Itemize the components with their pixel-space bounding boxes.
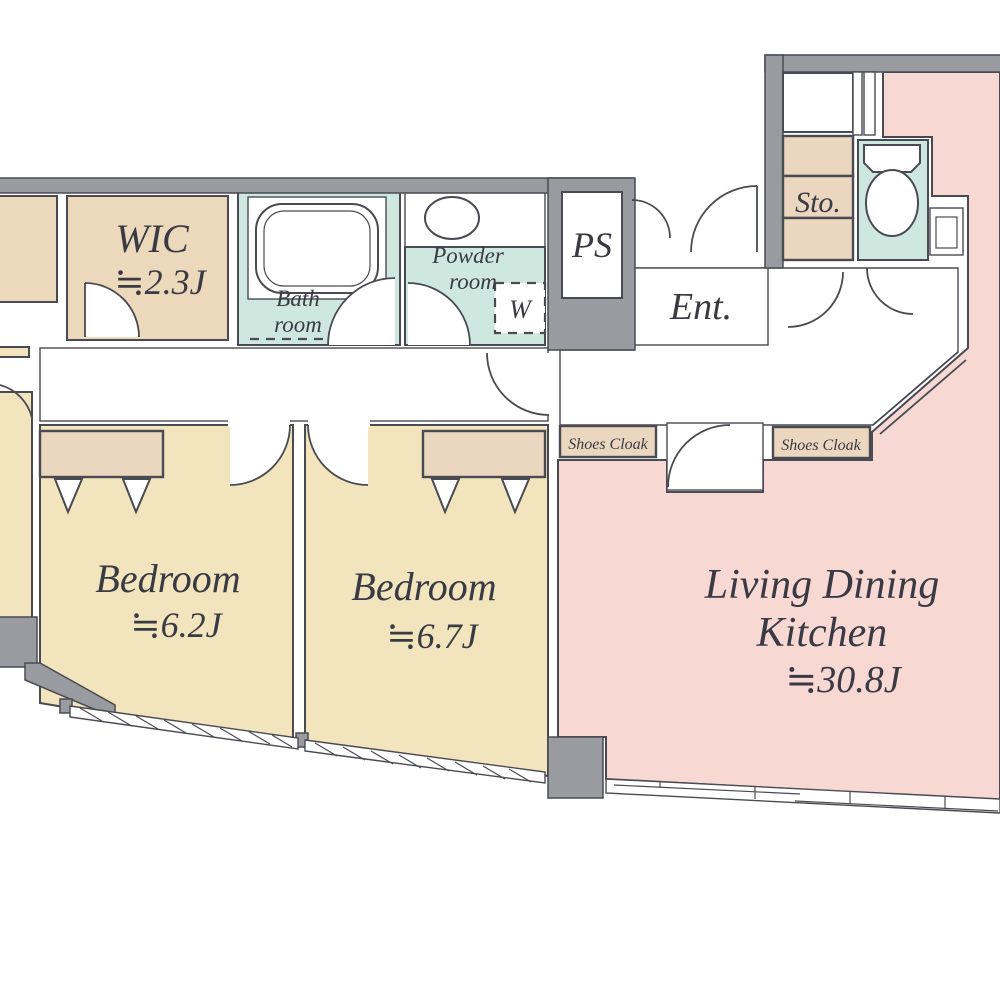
storage-upper-box (783, 73, 853, 132)
room-storage (783, 73, 853, 260)
shoes-cloak-left-label: Shoes Cloak (568, 436, 648, 453)
left-room-bottom (0, 392, 32, 618)
wall-top-left (0, 178, 632, 193)
door-arc-entry-small (632, 200, 670, 238)
bedroom-left-label: Bedroom (95, 556, 240, 601)
powder-label-1: Powder (431, 243, 505, 268)
bath-label-1: Bath (276, 286, 319, 311)
toilet-tank (864, 145, 920, 172)
floor-plan: WIC ≒2.3J Bath room Powder room W PS Ent… (0, 0, 1000, 1000)
ldk-label-2: Kitchen (756, 610, 888, 656)
bathtub-icon (256, 204, 378, 293)
wall-top-right (765, 55, 1000, 72)
entrance-label: Ent. (669, 286, 732, 328)
door-ldk-recess (667, 423, 763, 490)
bedroom-right-area: ≒6.7J (386, 616, 479, 656)
ldk-area: ≒30.8J (785, 659, 902, 701)
floor-plan-svg: WIC ≒2.3J Bath room Powder room W PS Ent… (0, 0, 1000, 1000)
door-arc-entry (691, 186, 757, 252)
powder-label-2: room (449, 269, 497, 294)
bedroom-left-area: ≒6.2J (130, 605, 223, 645)
ps-label: PS (571, 225, 612, 265)
closet-bedroom-left (40, 431, 163, 477)
duct-1 (853, 72, 862, 135)
left-room-top (0, 196, 57, 302)
toilet-bowl-icon (866, 170, 918, 236)
sink-icon (425, 197, 479, 239)
shoes-cloak-right-label: Shoes Cloak (781, 437, 861, 454)
storage-label: Sto. (795, 186, 841, 219)
bath-label-2: room (274, 312, 322, 337)
wall-pillar (548, 737, 603, 798)
bedroom-right-label: Bedroom (351, 564, 496, 609)
corridor (40, 348, 548, 421)
storage-shelf-3 (783, 218, 853, 260)
storage-shelf-1 (783, 136, 853, 176)
washer-label: W (509, 295, 533, 324)
ldk-label-1: Living Dining (704, 562, 940, 608)
closet-bedroom-right (423, 431, 545, 477)
wall-bottom-left-step (0, 617, 37, 667)
left-shelf (0, 347, 29, 357)
duct-2 (864, 72, 875, 135)
wic-label: WIC (115, 216, 190, 261)
wall-right-section-left (765, 55, 783, 268)
wic-area: ≒2.3J (114, 262, 207, 302)
